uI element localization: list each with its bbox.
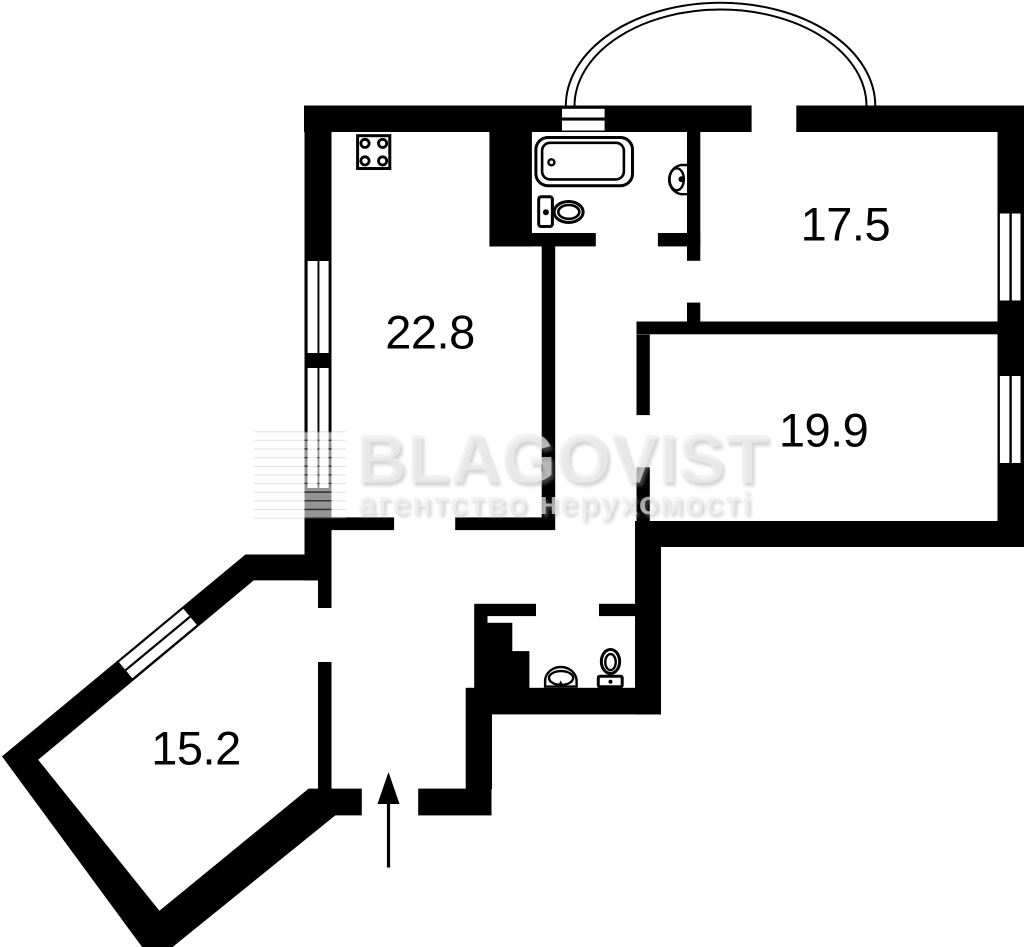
svg-text:17.5: 17.5 — [801, 198, 890, 251]
svg-text:19.9: 19.9 — [779, 404, 868, 457]
svg-text:15.2: 15.2 — [151, 722, 240, 775]
svg-text:агентство нерухомості: агентство нерухомості — [358, 485, 753, 521]
svg-text:22.8: 22.8 — [385, 306, 474, 359]
